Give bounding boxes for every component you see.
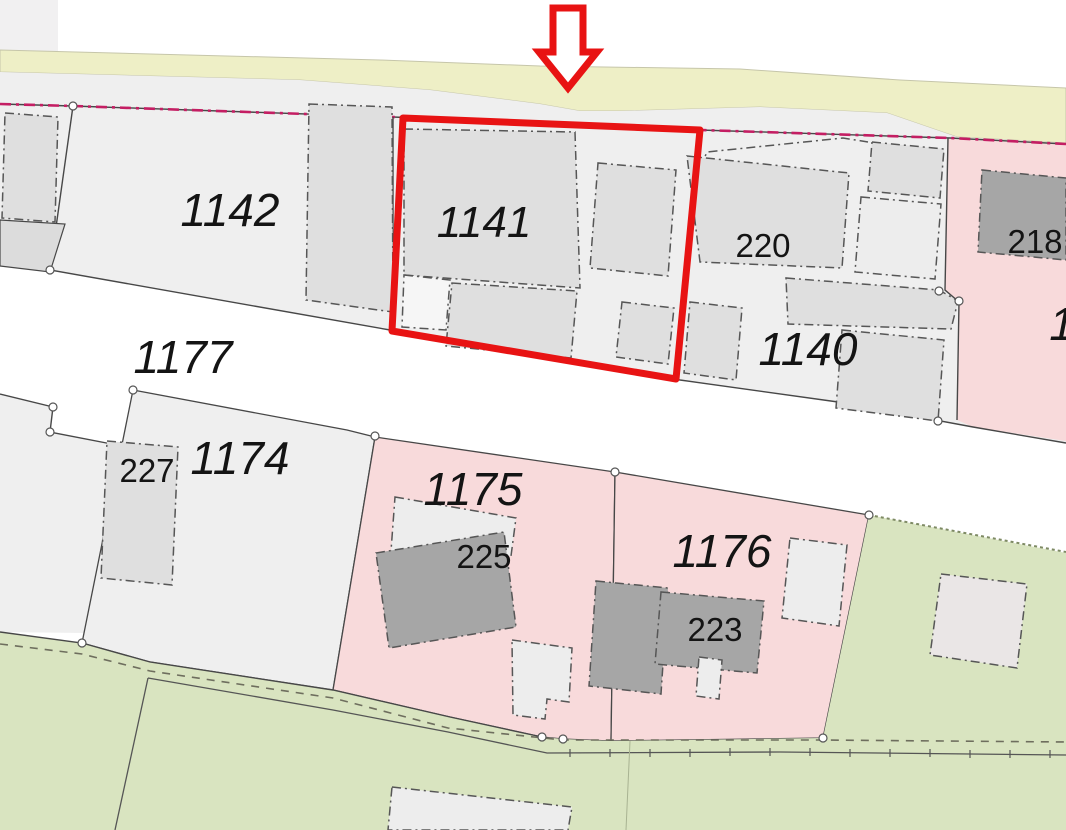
building-label-218: 218 [1007,223,1062,260]
parcel-label-1177: 1177 [134,331,234,383]
building-label-227: 227 [119,452,174,489]
building-1141-notch [402,275,450,330]
vertex-marker [865,511,873,519]
parcel-label-1142: 1142 [181,184,280,236]
vertex-marker [46,428,54,436]
vertex-marker [49,403,57,411]
vertex-marker [559,735,567,743]
vertex-marker [69,102,77,110]
parcel-label-1140: 1140 [759,323,858,375]
building-grass-square [930,574,1027,668]
building-1141-southeast [616,302,674,364]
building-label-225: 225 [456,538,511,575]
vertex-marker [935,287,943,295]
parcel-label-partial-right: 1 [1049,298,1066,350]
building-223-notch [696,657,722,699]
parcel-label-1175: 1175 [424,463,523,515]
vertex-marker [955,297,963,305]
parcel-label-1174: 1174 [191,432,290,484]
parcel-label-1176: 1176 [673,525,772,577]
vertex-marker [934,417,942,425]
vertex-marker [371,432,379,440]
building-223-west-wing [589,581,668,694]
building-1140-middle [855,197,941,279]
building-left-edge [2,113,58,222]
vertex-marker [819,734,827,742]
building-1176-outbuilding [782,538,847,626]
vertex-marker [129,386,137,394]
vertex-marker [46,266,54,274]
building-label-223: 223 [687,611,742,648]
building-1140-northeast [868,142,944,198]
map-canvas: 1142 1141 1140 1177 1174 1175 1176 1 220… [0,0,1066,830]
building-between-1142-1141 [306,104,393,312]
building-1141-northeast [590,163,676,276]
building-1140-west [684,302,742,380]
vertex-marker [78,639,86,647]
cadastral-map: 1142 1141 1140 1177 1174 1175 1176 1 220… [0,0,1066,830]
parcel-label-1141: 1141 [437,198,532,247]
building-label-220: 220 [735,227,790,264]
topleft-parcel-block [0,0,58,51]
vertex-marker [611,468,619,476]
vertex-marker [538,733,546,741]
